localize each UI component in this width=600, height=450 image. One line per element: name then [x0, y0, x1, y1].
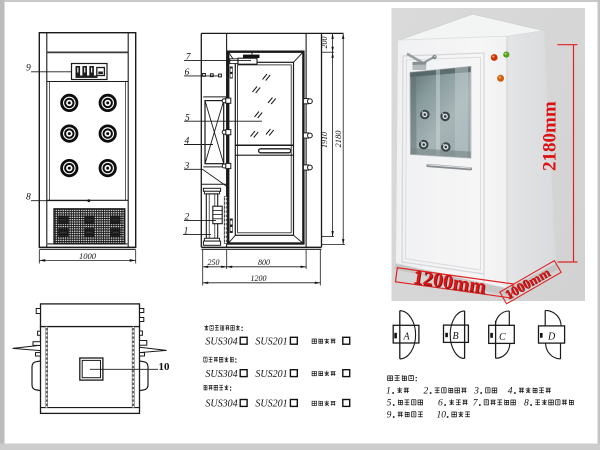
svg-text:8: 8 — [524, 399, 529, 409]
svg-text:9: 9 — [26, 64, 31, 74]
svg-text:1000: 1000 — [79, 251, 97, 261]
svg-text:800: 800 — [258, 258, 270, 267]
svg-text:SUS304: SUS304 — [205, 399, 237, 410]
svg-text:2: 2 — [424, 387, 429, 397]
svg-text:5: 5 — [387, 399, 392, 409]
svg-text:1200: 1200 — [251, 274, 267, 283]
svg-text:SUS201: SUS201 — [255, 369, 287, 380]
svg-text:A: A — [403, 332, 411, 343]
svg-text:1: 1 — [184, 227, 189, 237]
svg-text:6: 6 — [185, 68, 190, 78]
svg-text:3: 3 — [473, 387, 479, 397]
svg-text:2180: 2180 — [333, 130, 343, 148]
svg-text:250: 250 — [208, 258, 220, 267]
svg-text:200: 200 — [320, 37, 329, 49]
svg-text:D: D — [547, 332, 556, 343]
svg-text:2180mm: 2180mm — [540, 101, 561, 171]
svg-text:3: 3 — [184, 161, 190, 171]
svg-text:SUS201: SUS201 — [255, 337, 287, 348]
svg-text:8: 8 — [26, 193, 31, 203]
svg-text:B: B — [453, 331, 459, 342]
svg-text:10: 10 — [437, 411, 447, 421]
svg-text:5: 5 — [185, 113, 190, 123]
svg-text:1910: 1910 — [320, 132, 329, 148]
svg-text:SUS304: SUS304 — [205, 337, 237, 348]
svg-text:9: 9 — [387, 411, 392, 421]
svg-text:4: 4 — [508, 387, 513, 397]
svg-text:C: C — [499, 332, 506, 343]
svg-text:1: 1 — [386, 387, 391, 397]
svg-text:SUS201: SUS201 — [255, 399, 287, 410]
svg-text:SUS304: SUS304 — [205, 369, 237, 380]
svg-text:10: 10 — [159, 361, 171, 373]
svg-text:4: 4 — [185, 137, 190, 147]
svg-text:6: 6 — [438, 399, 443, 409]
svg-text:2: 2 — [185, 213, 190, 223]
